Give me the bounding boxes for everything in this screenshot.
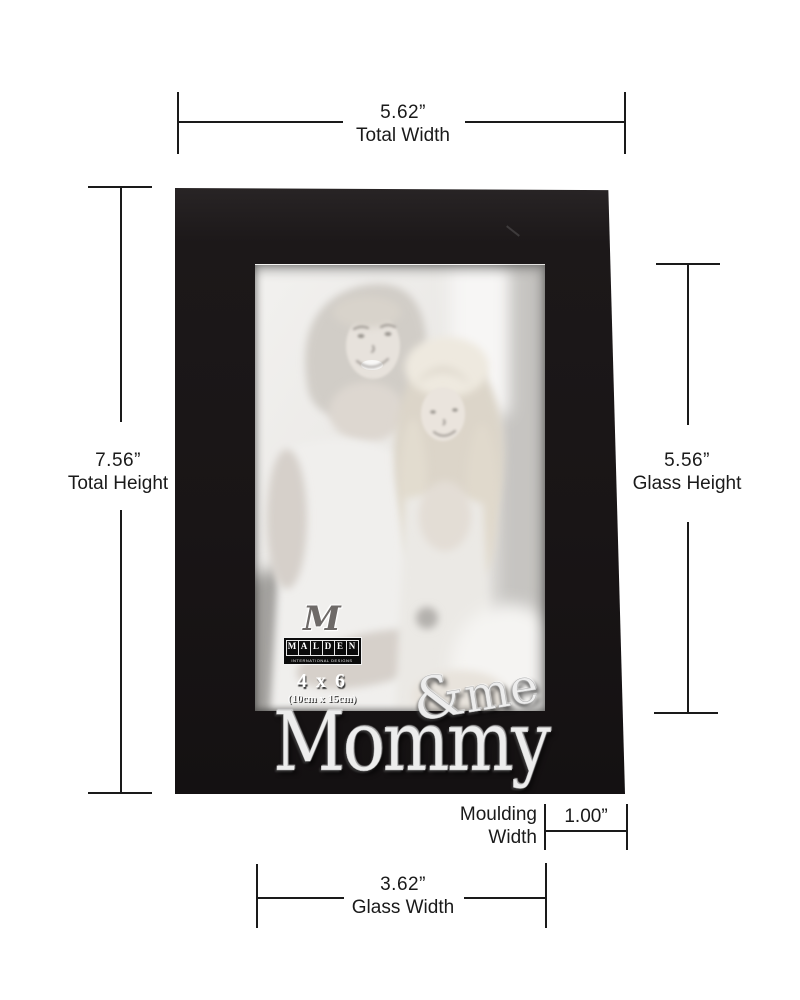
total-width-label: Total Width xyxy=(333,124,473,147)
dim-line xyxy=(465,121,626,123)
dim-line xyxy=(687,522,689,714)
dim-line xyxy=(464,897,547,899)
caption-mommy: Mommy xyxy=(273,702,548,784)
photo: M M A L D E N INTERNATIONAL DESIGNS 4 x … xyxy=(255,264,545,711)
glass-width-label: Glass Width xyxy=(333,896,473,919)
dim-tick-left xyxy=(256,864,258,928)
dim-tick-right xyxy=(626,804,628,850)
dim-line xyxy=(120,510,122,794)
dim-line xyxy=(544,830,628,832)
dim-line xyxy=(256,897,344,899)
moulding-width-label: Moulding Width xyxy=(420,803,537,849)
dim-line xyxy=(120,186,122,422)
dim-tick-left xyxy=(177,92,179,154)
picture-frame: M M A L D E N INTERNATIONAL DESIGNS 4 x … xyxy=(175,188,625,794)
dim-tick-right xyxy=(545,863,547,928)
total-width-value: 5.62” xyxy=(333,101,473,124)
glass-reflection xyxy=(255,264,545,711)
glass-height-label: Glass Height xyxy=(587,472,787,495)
glass-width-value: 3.62” xyxy=(333,873,473,896)
glass-height-value: 5.56” xyxy=(587,449,787,472)
dim-tick-bottom xyxy=(654,712,718,714)
dim-tick-right xyxy=(624,92,626,154)
dim-line xyxy=(177,121,343,123)
moulding-width-value: 1.00” xyxy=(546,805,626,828)
product-dimension-diagram: 5.62” Total Width 7.56” Total Height 5.5… xyxy=(0,0,800,1000)
frame-scuff xyxy=(506,225,520,236)
dim-line xyxy=(687,263,689,425)
